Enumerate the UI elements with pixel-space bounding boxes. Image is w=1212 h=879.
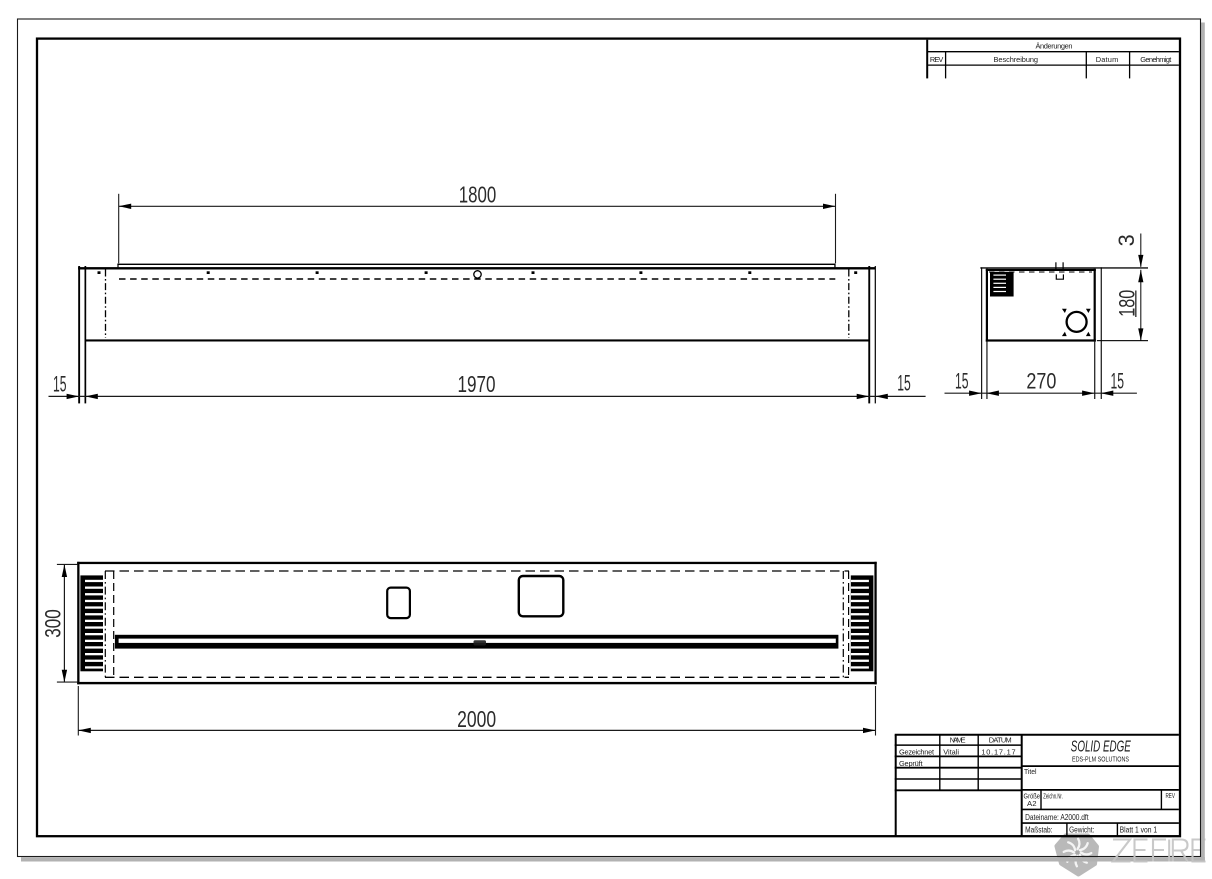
svg-text:Änderungen: Änderungen: [1036, 41, 1073, 50]
svg-text:1800: 1800: [459, 182, 497, 208]
svg-text:Gewicht:: Gewicht:: [1069, 825, 1094, 834]
svg-text:270: 270: [1026, 368, 1056, 393]
svg-text:Datum: Datum: [1096, 55, 1119, 64]
svg-text:10.17.17: 10.17.17: [981, 747, 1015, 756]
svg-text:Titel: Titel: [1024, 767, 1037, 776]
svg-text:Beschreibung: Beschreibung: [994, 55, 1039, 64]
svg-text:15: 15: [897, 371, 911, 396]
svg-text:A2: A2: [1027, 799, 1037, 808]
svg-text:Dateiname: A2000.dft: Dateiname: A2000.dft: [1025, 813, 1089, 822]
svg-text:Geprüft: Geprüft: [899, 759, 923, 768]
svg-text:300: 300: [41, 609, 66, 638]
svg-text:SOLID EDGE: SOLID EDGE: [1071, 739, 1131, 756]
svg-text:Blatt 1 von 1: Blatt 1 von 1: [1120, 825, 1158, 834]
svg-text:EDS-PLM SOLUTIONS: EDS-PLM SOLUTIONS: [1072, 754, 1129, 763]
svg-text:REV: REV: [1165, 793, 1175, 800]
svg-text:Vitali: Vitali: [943, 747, 959, 756]
svg-text:Zeichn.Nr.: Zeichn.Nr.: [1043, 792, 1063, 801]
svg-text:1970: 1970: [458, 371, 496, 397]
svg-text:Gezeichnet: Gezeichnet: [899, 747, 934, 756]
svg-text:3: 3: [1114, 234, 1139, 246]
svg-text:15: 15: [1111, 368, 1125, 393]
svg-text:NAME: NAME: [950, 736, 966, 745]
svg-text:15: 15: [53, 371, 67, 396]
svg-text:REV: REV: [930, 55, 944, 64]
svg-text:15: 15: [955, 368, 969, 393]
svg-text:Maßstab:: Maßstab:: [1025, 825, 1052, 834]
svg-text:2000: 2000: [457, 706, 496, 732]
svg-text:Genehmigt: Genehmigt: [1140, 55, 1171, 64]
svg-text:DATUM: DATUM: [989, 736, 1012, 745]
